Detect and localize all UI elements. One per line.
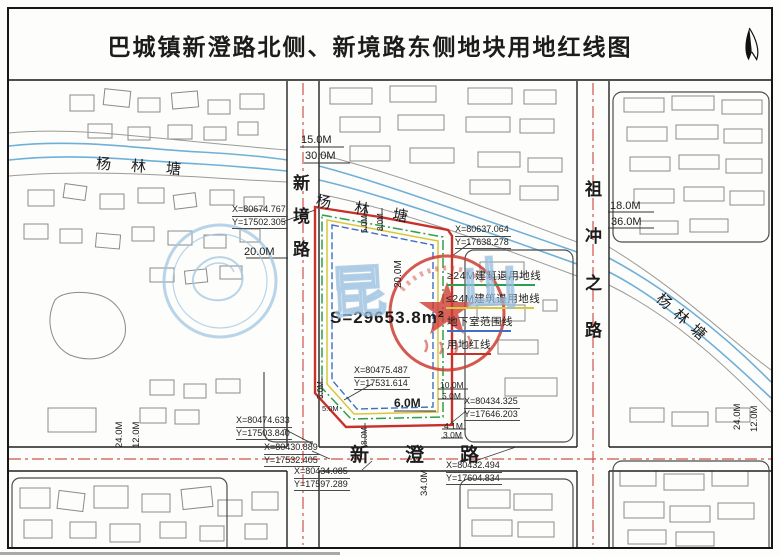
scan-edge-shadow [0, 552, 340, 555]
dimension-label: 24.0M [114, 422, 125, 448]
dimension-label: 5.0M [322, 404, 339, 413]
watermark-char: 山 [460, 239, 520, 323]
dimension-label: 12.0M [749, 406, 760, 432]
coordinate-label: X=80434.085Y=17597.289 [294, 466, 350, 491]
legend-label: 用地红线 [447, 339, 491, 351]
dimension-label: 20.0M [244, 246, 275, 258]
coordinate-label: X=80432.494Y=17604.834 [446, 460, 502, 485]
dimension-label: 10.0M [440, 380, 464, 390]
dimension-label: 5.0M [360, 215, 369, 233]
road-label-xinjing: 新境路 [287, 174, 312, 273]
dimension-label: 8.0M [376, 213, 385, 231]
dimension-label: 18.0M [610, 200, 641, 212]
dimension-label: 8.0M [360, 427, 369, 445]
dimension-label: 5.0M [316, 381, 325, 399]
dimension-label: 20.0M [393, 260, 404, 288]
redline-map-sheet: 巴城镇新澄路北侧、新境路东侧地块用地红线图 新境路 祖冲之路 新澄路 杨林塘 杨… [0, 0, 780, 556]
watermark-char: 昆 [328, 247, 388, 331]
dimension-label: 30.0M [305, 150, 336, 162]
dimension-label: 24.0M [732, 404, 743, 430]
coordinate-label: X=80475.487Y=17531.614 [354, 365, 410, 390]
road-label-zuchongzhi: 祖冲之路 [579, 180, 604, 368]
blue-seal-watermark [164, 225, 276, 337]
legend-line-red [447, 353, 491, 355]
coordinate-label: X=80430.889Y=17532.405 [264, 442, 320, 467]
dimension-label: 6.0M [394, 396, 421, 410]
coordinate-label: X=80674.767Y=17502.305 [232, 204, 288, 229]
dimension-label: 3.0M [443, 430, 462, 440]
north-arrow-icon [743, 27, 758, 60]
dimension-label: 15.0M [301, 134, 332, 146]
dimension-label: 5.0M [442, 391, 461, 401]
coordinate-label: X=80474.633Y=17503.840 [236, 415, 292, 440]
dimension-label: 34.0M [419, 470, 430, 496]
coordinate-label: X=80434.325Y=17646.203 [464, 396, 520, 421]
page-title: 巴城镇新澄路北侧、新境路东侧地块用地红线图 [8, 28, 732, 62]
map-linework [0, 0, 780, 556]
dimension-label: 12.0M [131, 422, 142, 448]
dimension-label: 36.0M [611, 216, 642, 228]
legend-item-redline: 用地红线 [447, 337, 491, 355]
legend-line-blue [447, 330, 511, 332]
